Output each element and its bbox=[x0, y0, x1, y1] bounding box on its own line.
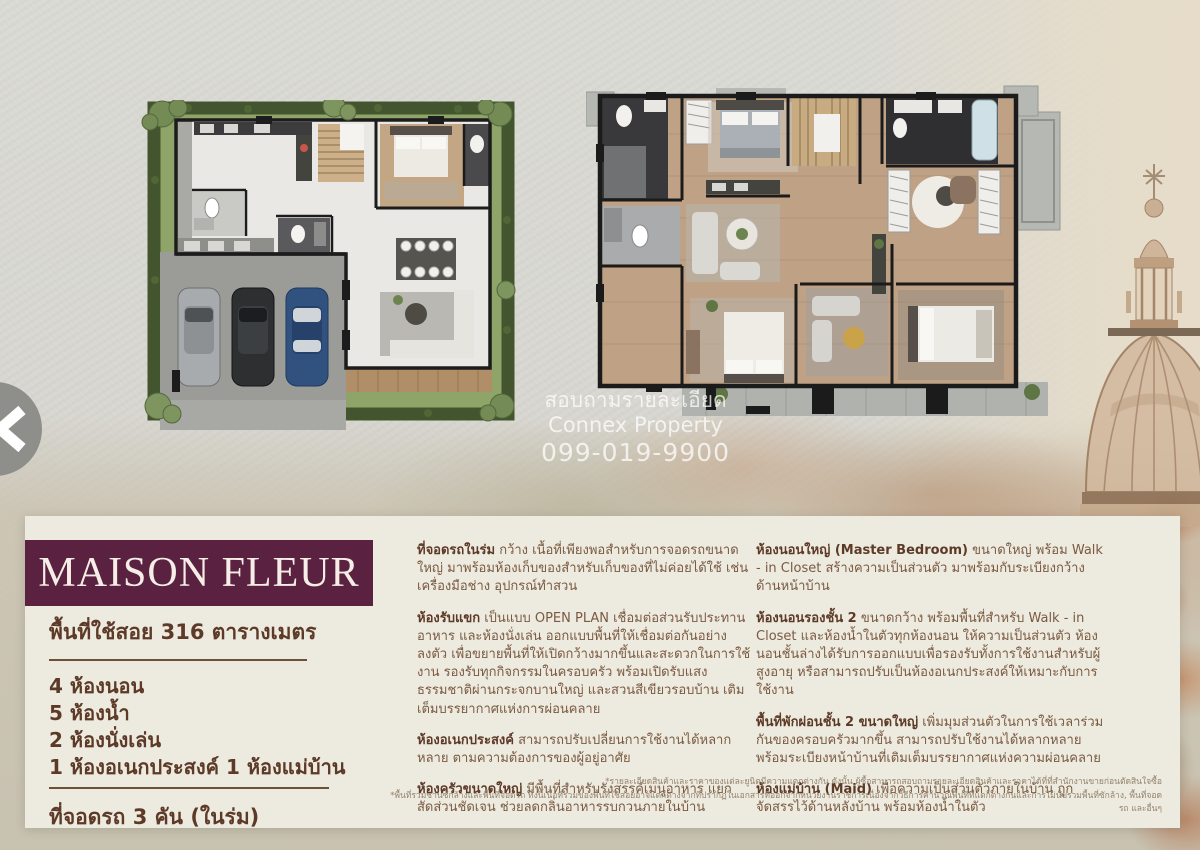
feature-heading: ห้องรับแขก bbox=[417, 611, 480, 626]
feature-multipurpose-room: ห้องอเนกประสงค์ สามารถปรับเปลี่ยนการใช้ง… bbox=[417, 732, 751, 768]
spec-living-rooms: 2 ห้องนั่งเล่น bbox=[49, 727, 389, 754]
feature-heading: ที่จอดรถในร่ม bbox=[417, 543, 495, 558]
watermark: สอบถามรายละเอียด Connex Property 099-019… bbox=[518, 388, 753, 467]
feature-parking: ที่จอดรถในร่ม กว้าง เนื้อที่เพียงพอสำหรั… bbox=[417, 542, 751, 597]
watermark-phone-line: 099-019-9900 bbox=[518, 438, 753, 468]
footnotes: *รายละเอียดสินค้าและราคาของแต่ละยูนิตมีค… bbox=[382, 776, 1162, 816]
spec-bathrooms: 5 ห้องน้ำ bbox=[49, 700, 389, 727]
project-title: MAISON FLEUR bbox=[38, 549, 359, 597]
feature-heading: พื้นที่พักผ่อนชั้น 2 ขนาดใหญ่ bbox=[756, 715, 918, 730]
watermark-contact-line: สอบถามรายละเอียด bbox=[518, 388, 753, 413]
info-panel: MAISON FLEUR พื้นที่ใช้สอย 316 ตารางเมตร… bbox=[25, 516, 1180, 828]
parking-line: ที่จอดรถ 3 คัน (ในร่ม) bbox=[49, 801, 389, 834]
spec-column: พื้นที่ใช้สอย 316 ตารางเมตร 4 ห้องนอน 5 … bbox=[49, 616, 389, 834]
chevron-left-icon bbox=[0, 406, 28, 452]
feature-heading: ห้องนอนใหญ่ (Master Bedroom) bbox=[756, 543, 968, 558]
watermark-brand-line: Connex Property bbox=[518, 413, 753, 438]
footnote-line-1: *รายละเอียดสินค้าและราคาของแต่ละยูนิตมีค… bbox=[382, 776, 1162, 789]
feature-heading: ห้องนอนรองชั้น 2 bbox=[756, 611, 857, 626]
footnote-line-2: *พื้นที่รวมชานซักล้างและพื้นที่จอดรถ ทั้… bbox=[382, 790, 1162, 816]
feature-living-room: ห้องรับแขก เป็นแบบ OPEN PLAN เชื่อมต่อส่… bbox=[417, 610, 751, 719]
second-floor-plan bbox=[586, 84, 1064, 436]
brochure-page: { "colors": { "banner": "#5a2140", "pane… bbox=[0, 0, 1200, 850]
divider-bottom bbox=[49, 787, 329, 789]
feature-master-bedroom: ห้องนอนใหญ่ (Master Bedroom) ขนาดใหญ่ พร… bbox=[756, 542, 1104, 597]
usable-area-line: พื้นที่ใช้สอย 316 ตารางเมตร bbox=[49, 616, 389, 649]
spec-multipurpose-maid: 1 ห้องอเนกประสงค์ 1 ห้องแม่บ้าน bbox=[49, 754, 389, 781]
project-title-banner: MAISON FLEUR bbox=[25, 540, 373, 606]
feature-secondary-bedrooms: ห้องนอนรองชั้น 2 ขนาดกว้าง พร้อมพื้นที่ส… bbox=[756, 610, 1104, 701]
feature-heading: ห้องอเนกประสงค์ bbox=[417, 733, 514, 748]
feature-second-floor-lounge: พื้นที่พักผ่อนชั้น 2 ขนาดใหญ่ เพิ่มมุมส่… bbox=[756, 714, 1104, 769]
divider-top bbox=[49, 659, 307, 661]
dome-watercolor-illustration bbox=[1080, 162, 1200, 527]
first-floor-plan bbox=[128, 100, 526, 430]
feature-body: เป็นแบบ OPEN PLAN เชื่อมต่อส่วนรับประทาน… bbox=[417, 611, 750, 717]
spec-bedrooms: 4 ห้องนอน bbox=[49, 673, 389, 700]
